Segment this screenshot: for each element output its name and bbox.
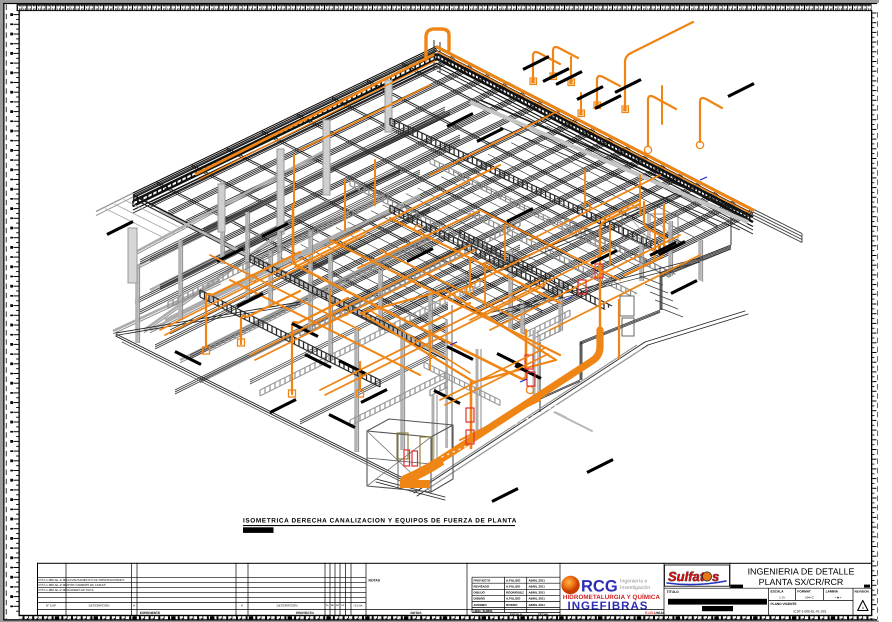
svg-text:0: 0 — [862, 606, 864, 610]
svg-text:APROBO: APROBO — [474, 603, 488, 607]
svg-text:RODRIGUEZ: RODRIGUEZ — [506, 591, 524, 595]
svg-text:ICST-1-000-GL-P-001: ICST-1-000-GL-P-001 — [39, 578, 69, 582]
svg-text:DIBUJO: DIBUJO — [474, 591, 486, 595]
svg-text:A.PULIDO: A.PULIDO — [506, 585, 521, 589]
svg-text:DESCRIPCION: DESCRIPCION — [277, 603, 298, 607]
svg-text:ICST-1-000-GL-P-003: ICST-1-000-GL-P-003 — [39, 588, 69, 592]
svg-text:CAMBIO DE RUTA: CAMBIO DE RUTA — [68, 588, 94, 592]
svg-text:Ingeniería e: Ingeniería e — [620, 579, 648, 585]
svg-text:NOTAS: NOTAS — [411, 611, 422, 615]
svg-text:FORMAT: FORMAT — [797, 589, 810, 593]
svg-text:AP: AP — [336, 604, 340, 607]
svg-text:REVISADO: REVISADO — [474, 585, 490, 589]
svg-text:INGEFIBRAS: INGEFIBRAS — [568, 601, 649, 613]
svg-text:FECHA: FECHA — [354, 604, 363, 607]
svg-text:ISOMETRICA DERECHA CANALIZACIO: ISOMETRICA DERECHA CANALIZACION Y EQUIPO… — [243, 518, 517, 525]
svg-text:PLANTA SX/CR/RCR: PLANTA SX/CR/RCR — [759, 577, 844, 587]
svg-text:1:75: 1:75 — [779, 596, 785, 600]
svg-text:594+C: 594+C — [805, 596, 815, 600]
svg-text:EXPEDIENTE: EXPEDIENTE — [140, 611, 160, 615]
svg-text:ESCALA: ESCALA — [510, 613, 523, 617]
svg-text:PROYECTO: PROYECTO — [296, 611, 314, 615]
svg-text:ICST-1-000-GL-P-002: ICST-1-000-GL-P-002 — [39, 583, 69, 587]
svg-text:UBIC. SUMIN.: UBIC. SUMIN. — [474, 609, 494, 613]
svg-text:+ ■ +: + ■ + — [835, 596, 842, 600]
svg-text:LEVANTAMIENTO DE OBSERVACIONES: LEVANTAMIENTO DE OBSERVACIONES — [68, 578, 124, 582]
svg-text:INGENIERIA DE DETALLE: INGENIERIA DE DETALLE — [748, 567, 855, 577]
svg-text:A.PULIDO: A.PULIDO — [506, 597, 521, 601]
svg-text:ABRIL 2011: ABRIL 2011 — [529, 579, 546, 583]
svg-text:FECHA: FECHA — [538, 613, 549, 617]
svg-text:RE: RE — [331, 604, 335, 607]
svg-text:RIVERO: RIVERO — [506, 603, 518, 607]
svg-text:H: H — [133, 603, 135, 607]
svg-text:ABRIL 2011: ABRIL 2011 — [529, 597, 546, 601]
svg-text:LAMINA: LAMINA — [826, 589, 839, 593]
svg-text:ABRIL 2011: ABRIL 2011 — [529, 591, 546, 595]
svg-text:N° EXP: N° EXP — [46, 603, 56, 607]
svg-text:POR CAMBIOS DE LINEAS: POR CAMBIOS DE LINEAS — [68, 583, 106, 587]
svg-text:HOJA: HOJA — [656, 611, 666, 615]
svg-text:H: H — [241, 603, 243, 607]
svg-text:E.I.R.L.: E.I.R.L. — [645, 611, 657, 615]
svg-text:ABRIL 2011: ABRIL 2011 — [529, 603, 546, 607]
svg-text:PLANO VIGENTE: PLANO VIGENTE — [771, 602, 797, 606]
svg-text:RCG: RCG — [581, 578, 618, 596]
svg-text:TITULO: TITULO — [667, 590, 680, 594]
svg-text:REVISION: REVISION — [855, 589, 869, 593]
svg-text:FE: FE — [341, 604, 344, 607]
svg-text:Sulfat: Sulfat — [668, 569, 705, 584]
svg-text:Investigación: Investigación — [620, 585, 650, 591]
svg-text:PROYECTO: PROYECTO — [474, 579, 491, 583]
svg-text:DESCRIPCION: DESCRIPCION — [89, 603, 110, 607]
svg-text:ICST-1-000-GL-PL-001: ICST-1-000-GL-PL-001 — [794, 610, 827, 614]
svg-text:NOTAS: NOTAS — [369, 579, 381, 583]
svg-text:ABRIL 2011: ABRIL 2011 — [529, 585, 546, 589]
svg-text:ESCALA: ESCALA — [771, 589, 785, 593]
svg-text:DISEÑO: DISEÑO — [474, 597, 486, 601]
svg-text:A.PULIDO: A.PULIDO — [506, 579, 521, 583]
